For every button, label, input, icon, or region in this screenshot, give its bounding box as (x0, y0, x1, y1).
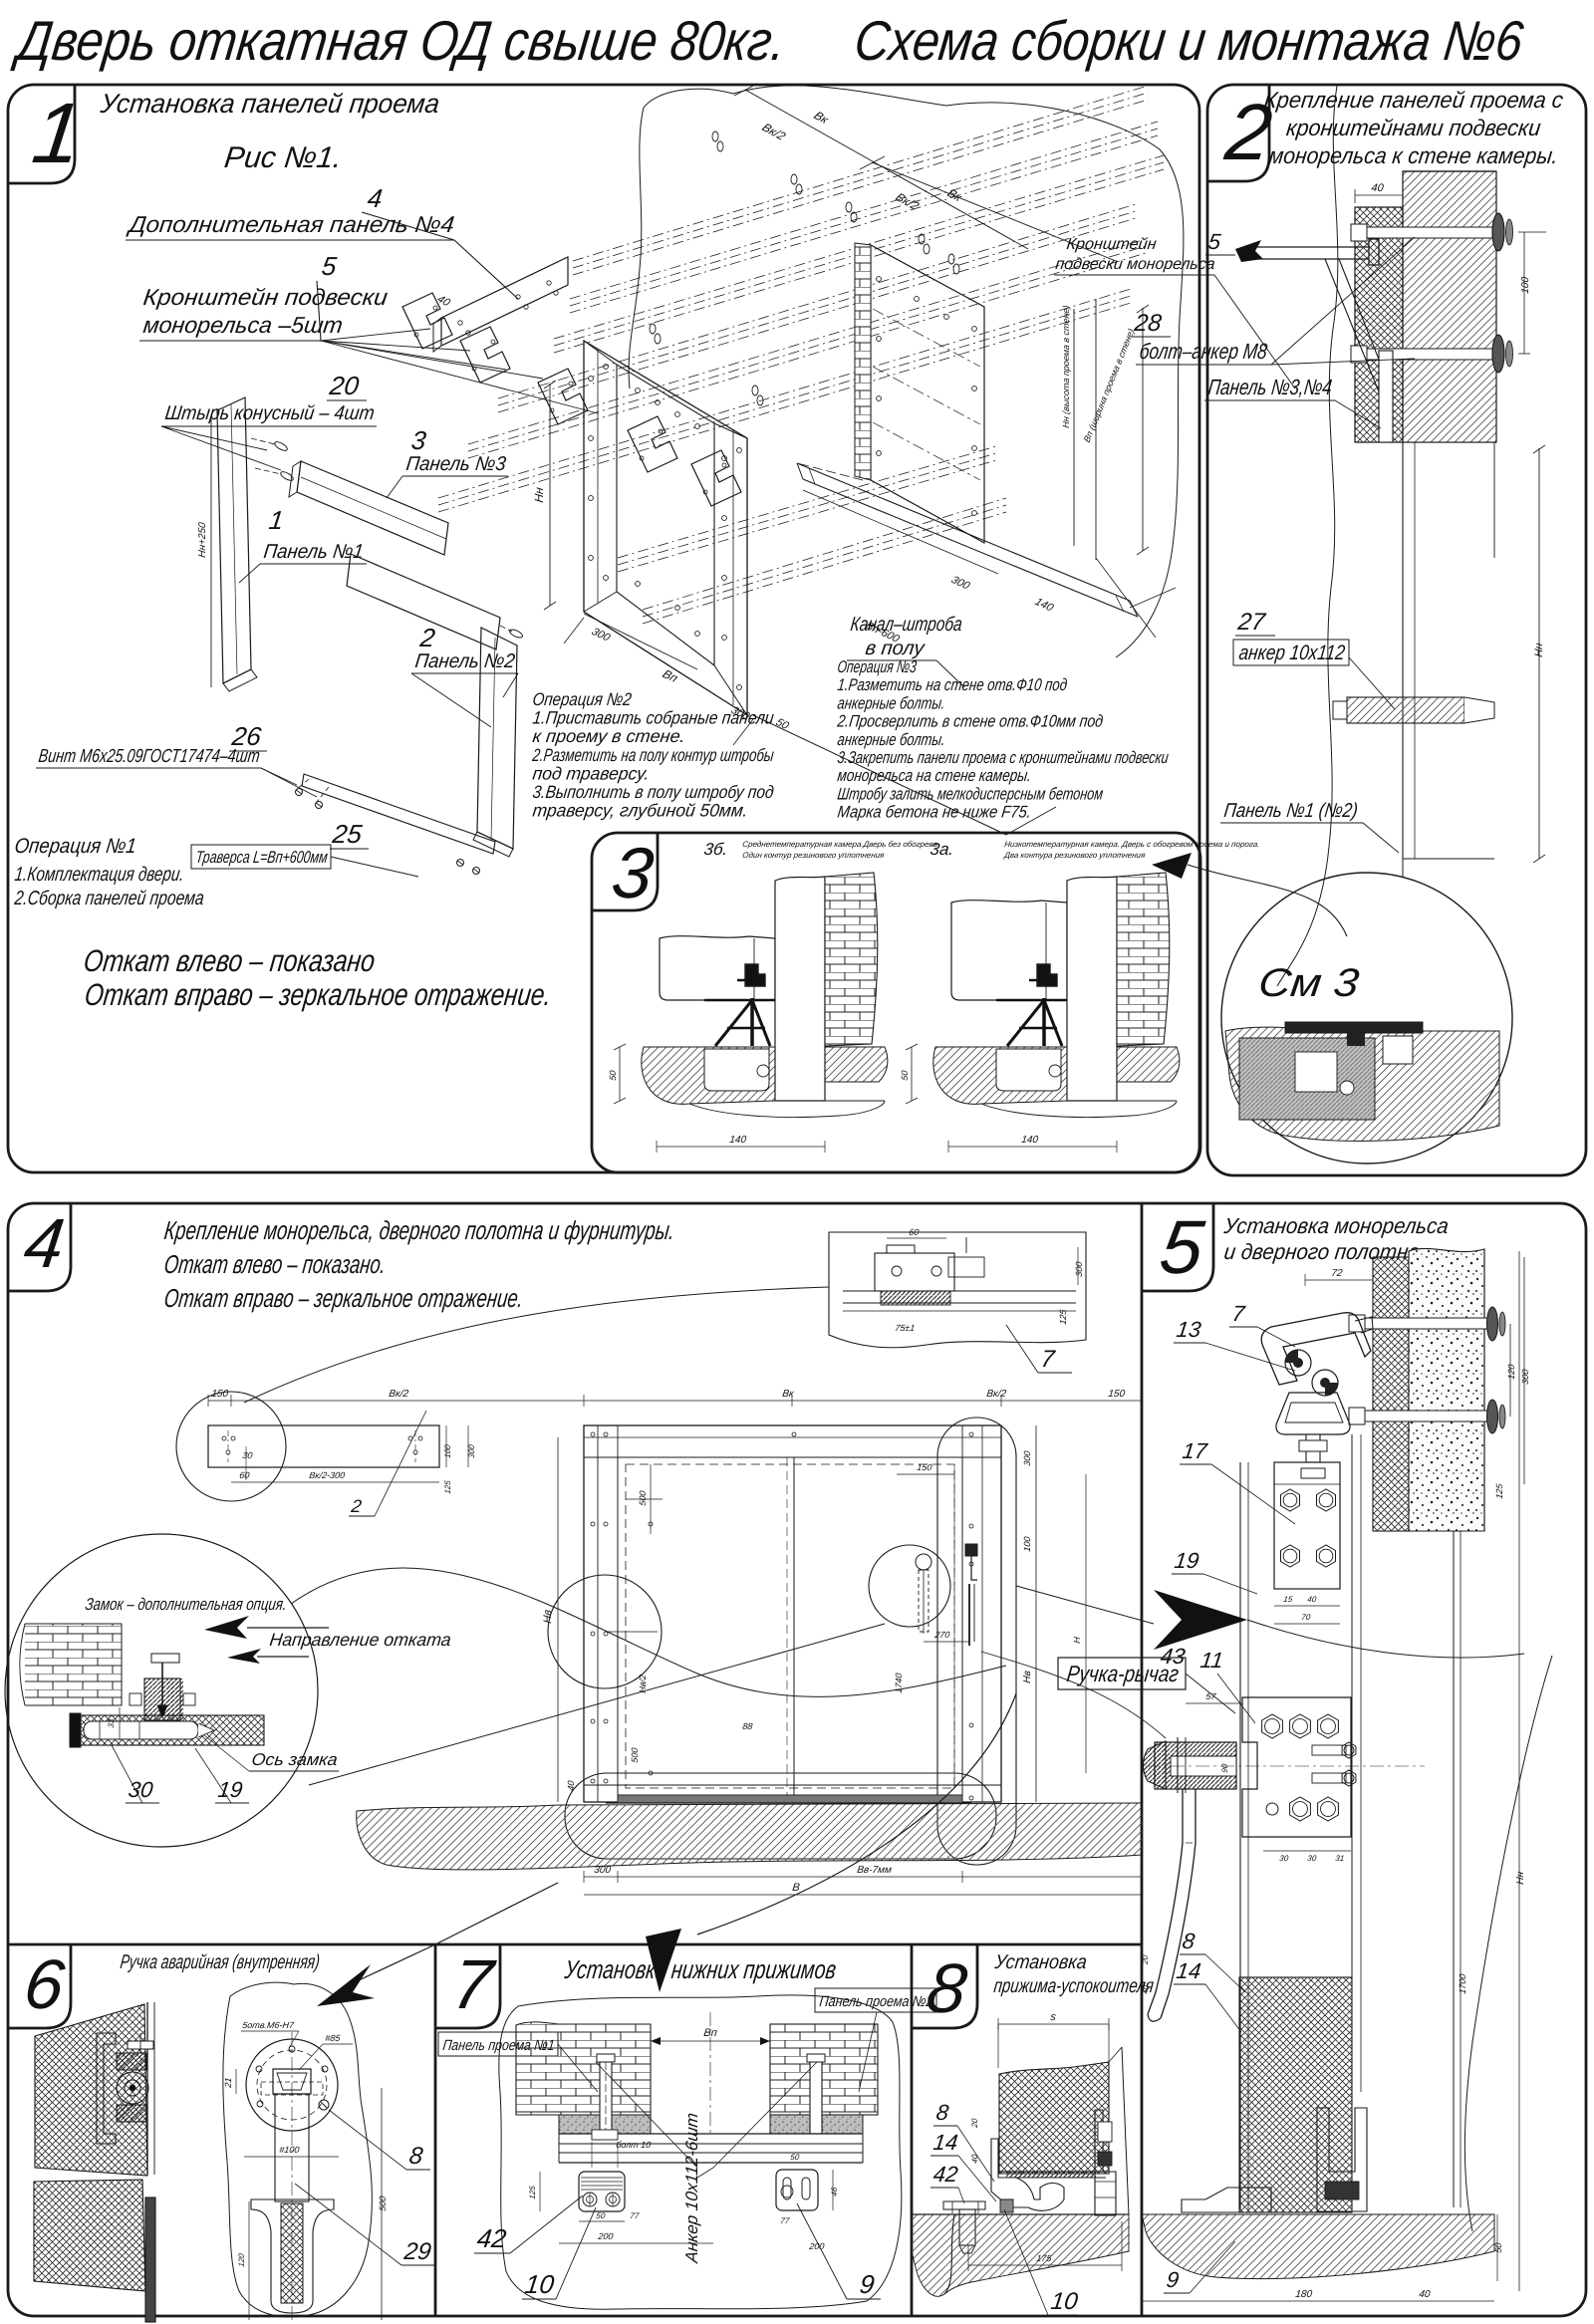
svg-text:20: 20 (970, 2118, 979, 2130)
svg-text:Откат влево – показано: Откат влево – показано (82, 943, 377, 978)
svg-text:Ручка аварийная (внутренняя): Ручка аварийная (внутренняя) (119, 1951, 321, 1973)
svg-text:40: 40 (1419, 2289, 1432, 2300)
svg-text:Два контура резинового уплотне: Два контура резинового уплотнения (1003, 851, 1147, 860)
svg-text:125: 125 (528, 2185, 537, 2199)
svg-text:40: 40 (1307, 1595, 1318, 1604)
svg-text:14: 14 (1175, 1958, 1202, 1983)
svg-text:3.Закрепить панели проема с кр: 3.Закрепить панели проема с кронштейнами… (837, 748, 1171, 767)
svg-text:150: 150 (917, 1462, 932, 1472)
svg-text:Установка: Установка (992, 1951, 1088, 1973)
svg-text:100: 100 (443, 1443, 452, 1458)
svg-text:1700: 1700 (1458, 1973, 1467, 1994)
svg-text:200: 200 (808, 2241, 825, 2251)
svg-text:Ось замка: Ось замка (251, 1750, 339, 1769)
svg-text:180: 180 (1295, 2289, 1313, 2300)
svg-text:Установка монорельса: Установка монорельса (1221, 1213, 1450, 1238)
svg-text:50: 50 (900, 1070, 910, 1081)
svg-text:болт–анкер М8: болт–анкер М8 (1138, 339, 1269, 364)
svg-text:42: 42 (475, 2223, 508, 2253)
svg-text:40: 40 (566, 1780, 576, 1791)
svg-text:30: 30 (242, 1450, 253, 1460)
svg-text:175: 175 (1036, 2253, 1053, 2263)
svg-text:#85: #85 (325, 2033, 342, 2043)
svg-text:1.Комплектация двери.: 1.Комплектация двери. (13, 864, 185, 886)
svg-text:1.Разметить на стене отв.Ф10 п: 1.Разметить на стене отв.Ф10 под (837, 675, 1069, 694)
svg-text:В: В (792, 1882, 801, 1894)
svg-text:30: 30 (1279, 1854, 1290, 1863)
svg-text:20: 20 (327, 371, 361, 400)
svg-text:Панель №1: Панель №1 (262, 541, 365, 563)
svg-text:150: 150 (1108, 1389, 1126, 1400)
svg-text:#100: #100 (279, 2145, 300, 2155)
svg-text:300: 300 (594, 1865, 612, 1876)
svg-text:13: 13 (1175, 1317, 1202, 1342)
svg-text:300: 300 (1022, 1450, 1032, 1466)
svg-text:19: 19 (216, 1777, 244, 1802)
svg-text:15: 15 (1283, 1595, 1294, 1604)
svg-text:Панель проема №2: Панель проема №2 (819, 1993, 935, 2010)
svg-text:Кронштейн подвески: Кронштейн подвески (141, 284, 389, 310)
svg-text:Среднетемпературная камера.Две: Среднетемпературная камера.Дверь без обо… (742, 840, 938, 849)
svg-text:70: 70 (1301, 1613, 1312, 1622)
svg-text:50: 50 (790, 2153, 801, 2162)
svg-text:25: 25 (330, 819, 364, 849)
svg-text:Операция №1: Операция №1 (13, 835, 137, 858)
svg-text:75±1: 75±1 (895, 1323, 916, 1333)
svg-text:21: 21 (223, 2077, 233, 2089)
svg-text:14: 14 (931, 2130, 959, 2155)
svg-text:Нн: Нн (1533, 643, 1545, 657)
svg-text:140: 140 (1021, 1135, 1039, 1146)
svg-text:40: 40 (970, 2154, 979, 2165)
svg-text:500: 500 (630, 1747, 640, 1763)
svg-text:Панель №1 (№2): Панель №1 (№2) (1222, 800, 1359, 822)
svg-text:30: 30 (127, 1777, 154, 1802)
svg-text:Нн (высота проема в стене): Нн (высота проема в стене) (1061, 305, 1071, 428)
svg-text:100: 100 (1520, 276, 1531, 294)
svg-text:88: 88 (742, 1721, 753, 1731)
svg-text:Вк/2-300: Вк/2-300 (309, 1470, 346, 1480)
svg-text:Нн: Нн (1515, 1871, 1526, 1886)
svg-text:болт 10: болт 10 (616, 2140, 652, 2150)
svg-text:300: 300 (467, 1443, 476, 1458)
svg-text:3.Выполнить в полу штробу под: 3.Выполнить в полу штробу под (532, 782, 775, 802)
svg-text:50: 50 (1493, 2242, 1503, 2253)
svg-text:120: 120 (1506, 1364, 1516, 1380)
svg-text:прижима-успокоителя: прижима-успокоителя (992, 1975, 1155, 1997)
svg-text:кронштейнами подвески: кронштейнами подвески (1285, 115, 1542, 140)
svg-text:140: 140 (729, 1135, 747, 1146)
svg-text:Операция №2: Операция №2 (532, 689, 633, 709)
svg-text:Нв: Нв (1022, 1671, 1033, 1684)
svg-text:5отв.М6-Н7: 5отв.М6-Н7 (242, 2020, 296, 2030)
svg-text:2.Просверлить в стене отв.Ф10м: 2.Просверлить в стене отв.Ф10мм под (836, 712, 1105, 731)
svg-text:29: 29 (401, 2238, 432, 2265)
svg-text:270: 270 (933, 1630, 950, 1640)
svg-text:Откат влево – показано.: Откат влево – показано. (162, 1249, 388, 1279)
svg-text:2.Разметить на полу контур штр: 2.Разметить на полу контур штробы (531, 745, 775, 765)
svg-text:90: 90 (1220, 1763, 1229, 1774)
svg-text:500: 500 (378, 2195, 388, 2211)
svg-text:33: 33 (107, 1718, 116, 1729)
svg-text:монорельса к стене камеры.: монорельса к стене камеры. (1267, 142, 1559, 168)
svg-text:Дополнительная панель №4: Дополнительная панель №4 (125, 211, 455, 237)
svg-text:10: 10 (523, 2269, 556, 2299)
svg-text:Анкер 10х112-6шт: Анкер 10х112-6шт (682, 2112, 701, 2264)
svg-text:125: 125 (1494, 1482, 1504, 1499)
svg-text:31: 31 (1335, 1854, 1345, 1863)
svg-text:Панель проема №1: Панель проема №1 (442, 2037, 556, 2054)
svg-text:Штырь конусный – 4шт: Штырь конусный – 4шт (163, 402, 376, 424)
svg-text:Ручка-рычаг: Ручка-рычаг (1065, 1661, 1180, 1686)
svg-text:125: 125 (1058, 1308, 1068, 1325)
svg-text:Панель №3: Панель №3 (404, 453, 507, 475)
svg-text:11: 11 (1198, 1648, 1224, 1673)
svg-text:300: 300 (1520, 1369, 1530, 1385)
svg-text:100: 100 (1022, 1536, 1032, 1552)
svg-text:Крепление панелей проема с: Крепление панелей проема с (1262, 87, 1565, 113)
svg-text:Один контур резинового уплотне: Один контур резинового уплотнения (742, 851, 886, 860)
svg-text:Вк/2: Вк/2 (389, 1389, 409, 1400)
svg-text:Марка бетона не ниже F75.: Марка бетона не ниже F75. (837, 803, 1033, 822)
svg-text:Вв-7мм: Вв-7мм (857, 1865, 893, 1876)
svg-text:3а.: 3а. (930, 840, 955, 859)
svg-text:42: 42 (931, 2162, 959, 2187)
svg-text:200: 200 (597, 2231, 614, 2241)
svg-text:Рис №1.: Рис №1. (222, 141, 344, 174)
svg-text:27: 27 (1235, 609, 1268, 636)
svg-text:подвески монорельса: подвески монорельса (1055, 255, 1216, 273)
svg-text:Панель №2: Панель №2 (413, 650, 516, 672)
svg-text:анкер 10х112: анкер 10х112 (1237, 642, 1346, 664)
svg-text:См 3: См 3 (1256, 960, 1362, 1005)
svg-text:77: 77 (780, 2216, 791, 2225)
svg-text:300: 300 (1074, 1261, 1084, 1277)
svg-text:19: 19 (1173, 1548, 1200, 1573)
svg-text:Винт М6х25.09ГОСТ17474–4шт: Винт М6х25.09ГОСТ17474–4шт (37, 746, 261, 767)
svg-text:72: 72 (1331, 1268, 1344, 1279)
svg-text:60: 60 (239, 1470, 250, 1480)
svg-text:Нв: Нв (542, 1609, 554, 1624)
svg-text:Вк/2: Вк/2 (986, 1389, 1007, 1400)
svg-text:Кронштейн: Кронштейн (1066, 235, 1158, 253)
svg-text:10: 10 (1049, 2288, 1080, 2315)
svg-text:Штробу залить мелкодисперсным: Штробу залить мелкодисперсным бетоном (837, 784, 1105, 803)
svg-text:к проему в стене.: к проему в стене. (532, 726, 686, 746)
svg-text:120: 120 (237, 2252, 246, 2267)
svg-text:Установка панелей проема: Установка панелей проема (98, 88, 441, 119)
svg-text:150: 150 (211, 1389, 229, 1400)
svg-text:Панель №3,№4: Панель №3,№4 (1206, 375, 1333, 399)
svg-text:траверсу, глубиной 50мм.: траверсу, глубиной 50мм. (532, 801, 749, 821)
svg-text:Траверса L=Вп+600мм: Траверса L=Вп+600мм (195, 848, 330, 867)
svg-text:125: 125 (443, 1479, 452, 1494)
svg-text:28: 28 (1132, 310, 1164, 337)
svg-text:Нн: Нн (532, 486, 546, 503)
svg-text:Низкотемпературная камера. Две: Низкотемпературная камера. Дверь с обогр… (1004, 840, 1260, 849)
svg-text:монорельса –5шт: монорельса –5шт (141, 312, 344, 338)
svg-text:60: 60 (909, 1227, 920, 1237)
svg-text:Крепление монорельса, дверного: Крепление монорельса, дверного полотна и… (162, 1215, 676, 1245)
svg-text:46: 46 (830, 2187, 839, 2197)
svg-text:анкерные болты.: анкерные болты. (837, 693, 946, 712)
svg-text:77: 77 (630, 2211, 641, 2220)
svg-text:Откат вправо – зеркальное отра: Откат вправо – зеркальное отражение. (162, 1283, 525, 1313)
svg-text:монорельса на стене камеры.: монорельса на стене камеры. (837, 766, 1033, 785)
svg-text:Схема сборки и монтажа №6: Схема сборки и монтажа №6 (852, 9, 1527, 72)
svg-text:17: 17 (1181, 1438, 1208, 1463)
svg-text:50: 50 (596, 2211, 607, 2220)
svg-text:20: 20 (1141, 1954, 1150, 1966)
svg-text:анкерные болты.: анкерные болты. (837, 730, 946, 749)
svg-text:Направление отката: Направление отката (269, 1630, 452, 1650)
svg-text:40: 40 (1371, 182, 1386, 194)
svg-text:Нн+250: Нн+250 (197, 521, 208, 558)
svg-text:под траверсу.: под траверсу. (532, 763, 651, 783)
svg-text:500: 500 (638, 1490, 648, 1506)
svg-text:Откат вправо – зеркальное отра: Откат вправо – зеркальное отражение. (83, 977, 553, 1012)
svg-text:3б.: 3б. (703, 840, 729, 859)
svg-text:50: 50 (608, 1070, 618, 1081)
svg-text:Установка нижних прижимов: Установка нижних прижимов (563, 1954, 838, 1984)
svg-text:2.Сборка панелей проема: 2.Сборка панелей проема (13, 888, 205, 909)
svg-text:Дверь откатная ОД свыше 80кг.: Дверь откатная ОД свыше 80кг. (9, 9, 789, 72)
svg-text:30: 30 (1307, 1854, 1318, 1863)
svg-text:Замок – дополнительная опция.: Замок – дополнительная опция. (85, 1595, 288, 1614)
